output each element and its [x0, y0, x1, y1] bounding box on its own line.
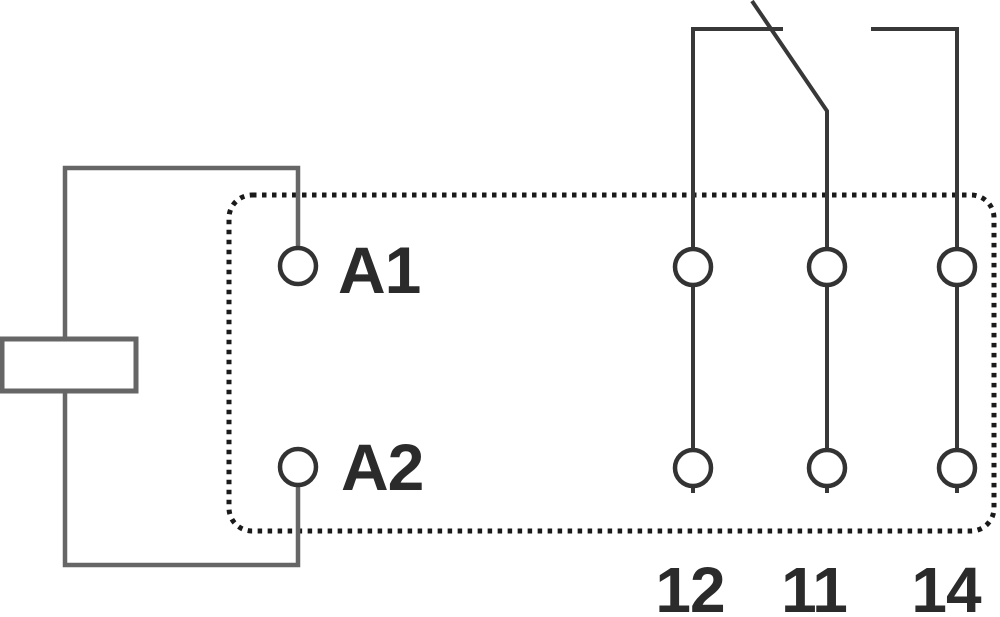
terminal-circle-14-top [939, 249, 975, 285]
label-14: 14 [911, 554, 982, 617]
coil-symbol [2, 339, 136, 391]
relay-circuit-diagram: A1 A2 12 11 14 [0, 0, 1000, 617]
label-a2: A2 [341, 430, 423, 504]
terminal-circle-11-top [809, 249, 845, 285]
terminal-circle-14-bottom [939, 450, 975, 486]
terminal-circle-12-top [675, 249, 711, 285]
terminal-circle-a2 [280, 449, 316, 485]
contact-14-arm [871, 29, 957, 249]
contact-12-arm [693, 29, 783, 249]
label-11: 11 [781, 554, 847, 617]
coil-wire-a2 [65, 390, 298, 565]
label-12: 12 [655, 554, 724, 617]
terminal-circle-12-bottom [675, 450, 711, 486]
terminal-circle-11-bottom [809, 450, 845, 486]
schematic-canvas: A1 A2 12 11 14 [0, 0, 1000, 617]
label-a1: A1 [338, 233, 420, 307]
terminal-circle-a1 [280, 248, 316, 284]
switch-blade-11 [752, 1, 827, 249]
